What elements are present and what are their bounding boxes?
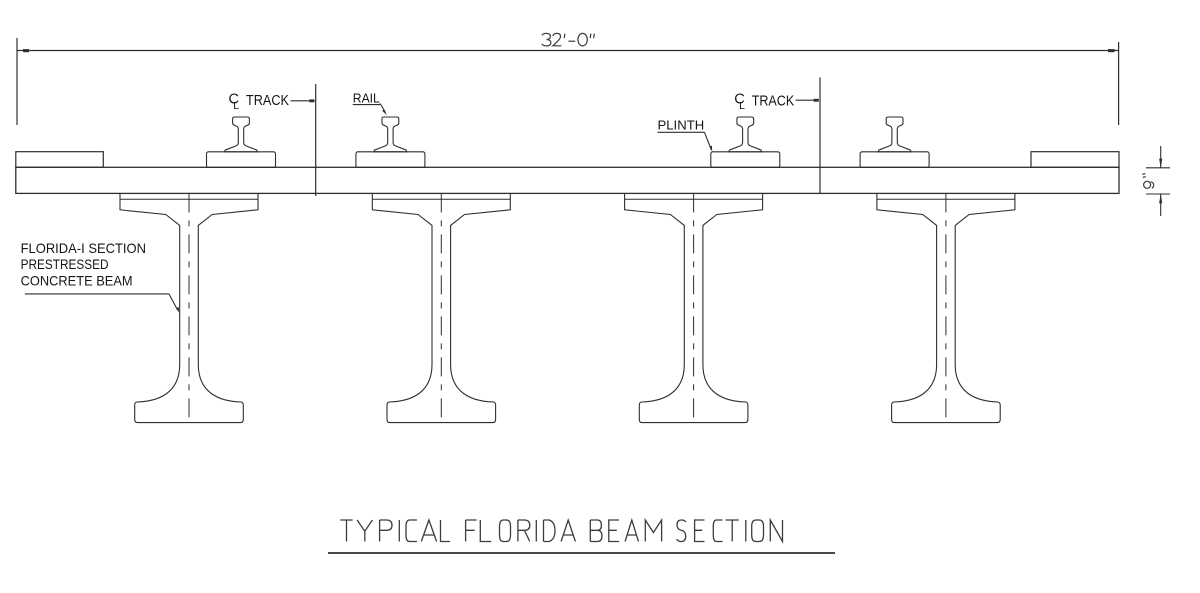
svg-text:TRACK: TRACK [246, 93, 289, 109]
svg-text:L: L [739, 100, 745, 112]
svg-text:CONCRETE BEAM: CONCRETE BEAM [21, 272, 133, 288]
svg-text:PLINTH: PLINTH [658, 118, 705, 132]
svg-text:RAIL: RAIL [353, 92, 380, 106]
svg-text:FLORIDA-I SECTION: FLORIDA-I SECTION [21, 240, 146, 256]
svg-text:TRACK: TRACK [752, 93, 795, 109]
svg-text:PRESTRESSED: PRESTRESSED [21, 256, 109, 272]
svg-text:L: L [233, 100, 239, 112]
